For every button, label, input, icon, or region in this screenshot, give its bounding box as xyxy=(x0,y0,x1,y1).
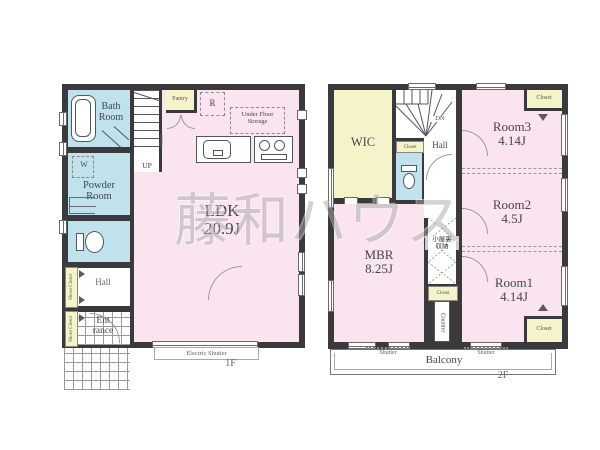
under-floor-storage: Under Floor Storage xyxy=(230,107,285,134)
room-toilet-1f xyxy=(68,221,130,262)
partition-dashed-line xyxy=(462,168,562,174)
floor1-label: 1F xyxy=(203,359,258,370)
toilet-icon xyxy=(85,231,104,253)
room3-label: Room3 4.14J xyxy=(476,120,548,148)
shoes-closet-1-label: Shoes Closet xyxy=(69,275,74,301)
counter: Counter xyxy=(434,301,450,342)
stairs-fan-icon xyxy=(396,90,456,138)
counter-label: Counter xyxy=(439,305,445,341)
shoes-closet-1: Shoes Closet xyxy=(65,267,78,308)
toilet-icon xyxy=(76,233,84,251)
window-icon xyxy=(59,220,67,234)
window-icon xyxy=(476,83,506,90)
hall-door-arc-icon xyxy=(426,154,452,180)
bath-room-label: Bath Room xyxy=(93,102,129,124)
electric-shutter-label: Electric Shutter xyxy=(155,350,258,357)
room1-door-arc-icon xyxy=(462,256,488,282)
hall-closet-label: Closet xyxy=(404,145,417,150)
casement-window-icon xyxy=(297,110,307,120)
bath-door-line-icon xyxy=(102,130,122,148)
shutter-left: Shutter xyxy=(366,347,410,357)
step-mark-icon xyxy=(79,296,85,304)
hall-2f-label: Hall xyxy=(424,141,456,151)
toilet-icon xyxy=(401,165,417,172)
room3-closet: Closet xyxy=(524,90,562,111)
hall-closet: Closet xyxy=(396,141,424,153)
pantry-door-arc-icon xyxy=(167,115,181,129)
washer-box-icon: W xyxy=(72,156,94,178)
entrance-label: Ent rance xyxy=(78,316,128,337)
window-icon xyxy=(561,178,568,212)
toilet-icon xyxy=(403,173,415,189)
mid-closet: Closet xyxy=(428,286,458,301)
room-bath: Bath Room xyxy=(68,90,130,147)
pantry: Pantry xyxy=(166,90,197,113)
room-powder: W Powder Room xyxy=(68,153,130,215)
hall-1f-label: Hall xyxy=(76,278,130,288)
window-icon xyxy=(408,83,436,90)
room2-label: Room2 4.5J xyxy=(476,198,548,226)
ldk-door-arc-icon xyxy=(208,266,242,300)
balcony-label: Balcony xyxy=(331,355,557,367)
casement-window-icon xyxy=(297,168,307,178)
shutter-left-label: Shutter xyxy=(366,350,410,356)
up-label: UP xyxy=(134,162,160,170)
window-icon xyxy=(561,266,568,306)
dn-label: DN xyxy=(430,116,450,122)
window-icon xyxy=(328,280,334,312)
mid-closet-label: Closet xyxy=(437,291,450,296)
niche-label: Niche xyxy=(160,124,166,156)
floorplan-canvas: Bath Room W Powder Room Hall Shoes Cl xyxy=(0,0,600,450)
room1-closet: Closet xyxy=(524,316,562,342)
shutter-right: Shutter xyxy=(464,347,508,357)
room-hall-1f: Hall xyxy=(76,268,130,306)
room1-label: Room1 4.14J xyxy=(478,276,550,304)
washer-label: W xyxy=(73,161,95,170)
window-icon xyxy=(298,274,305,296)
rooms-123-block: Closet Room3 4.14J Room2 4.5J Room1 4.14… xyxy=(462,90,562,342)
sink-icon xyxy=(203,140,231,159)
room1-closet-label: Closet xyxy=(527,326,561,332)
vanity-icon xyxy=(69,197,95,214)
shoes-closet-2-label: Shoes Closet xyxy=(69,316,74,342)
watermark: 藤和ハウス xyxy=(174,193,474,250)
refrigerator-box: R xyxy=(200,92,225,116)
stair-winder-line-icon xyxy=(134,92,161,102)
window-icon xyxy=(298,252,305,272)
room-entrance: Ent rance xyxy=(76,312,130,345)
room-wic: WIC xyxy=(334,90,392,198)
window-icon xyxy=(59,112,67,126)
wic-label: WIC xyxy=(334,136,392,150)
room3-closet-label: Closet xyxy=(527,95,561,101)
partition-dashed-line xyxy=(462,246,562,252)
stairs-2f: DN xyxy=(396,90,456,138)
under-floor-storage-label: Under Floor Storage xyxy=(231,111,284,125)
shutter-right-label: Shutter xyxy=(464,350,508,356)
stove-icon xyxy=(254,136,293,163)
entrance-porch xyxy=(64,348,130,390)
window-icon xyxy=(561,114,568,156)
pantry-door-arc-icon xyxy=(181,115,195,129)
window-icon xyxy=(59,142,67,156)
refrigerator-label: R xyxy=(201,99,224,109)
bath-door-line-icon xyxy=(114,126,130,140)
kitchen-island-icon xyxy=(196,136,251,163)
pantry-label: Pantry xyxy=(166,96,194,102)
floor2-label: 2F xyxy=(478,371,528,382)
door-swing-icon xyxy=(538,304,548,311)
step-mark-icon xyxy=(79,270,85,278)
stairs-1f: UP xyxy=(134,90,162,172)
shoes-closet-2: Shoes Closet xyxy=(65,311,78,347)
